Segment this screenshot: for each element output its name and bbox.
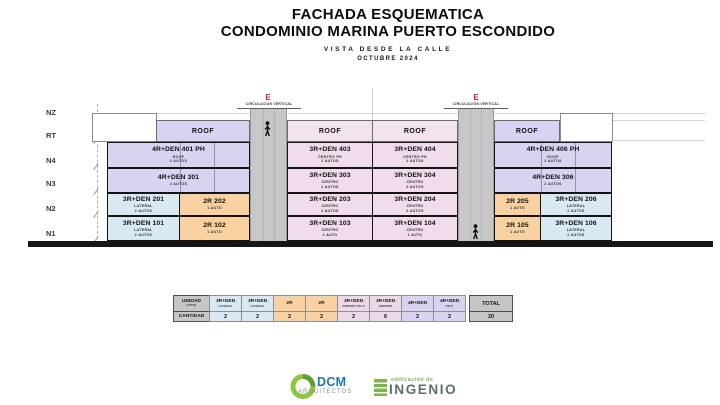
table-header-col: 3R+DEN LATERAL	[209, 295, 242, 312]
level-label-n3: N3	[46, 179, 56, 188]
roof-left: ROOF	[156, 120, 250, 142]
dcm-logo-text: DCM	[317, 375, 346, 389]
parapet-left	[92, 113, 157, 142]
unit-divider	[541, 143, 542, 167]
table-total-value: 20	[469, 311, 513, 322]
table-count-cell: 2	[273, 311, 306, 322]
elevator-letter-right: E	[466, 93, 486, 102]
person-icon	[471, 224, 480, 240]
table-count-cell: 2	[209, 311, 242, 322]
unit-303: 3R+DEN 303 CENTRO 2 AUTOS	[287, 168, 373, 193]
dcm-arquitectos-logo: DCM ARQUITECTOS	[289, 373, 375, 401]
table-header-unidad: UNIDAD (TIPO)	[173, 295, 210, 312]
tower-seam	[470, 109, 471, 241]
unit-104: 3R+DEN 104 CENTRO 1 AUTO	[372, 216, 458, 241]
parapet-top-line	[92, 113, 706, 114]
unit-403: 3R+DEN 403 CENTRO PH 2 AUTOS	[287, 142, 373, 168]
unit-404: 3R+DEN 404 CENTRO PH 2 AUTOS	[372, 142, 458, 168]
elevator-letter-left: E	[258, 93, 278, 102]
circulation-tower-right	[458, 109, 494, 241]
unit-105: 2R 105 1 AUTO	[494, 216, 541, 241]
unit-406: 4R+DEN 406 PH ROOF 2 AUTOS	[494, 142, 612, 168]
table-row-label: CANTIDAD	[173, 311, 210, 322]
table-count-cell: 2	[433, 311, 466, 322]
unit-101: 3R+DEN 101 LATERAL 2 AUTOS	[107, 216, 180, 241]
unit-102: 2R 102 1 AUTO	[179, 216, 250, 241]
unit-divider	[180, 143, 181, 167]
circulation-underline-right	[444, 108, 508, 109]
unit-301: 4R+DEN 301 2 AUTOS	[107, 168, 250, 193]
dcm-logo-subtext: ARQUITECTOS	[298, 389, 352, 395]
parapet-right	[560, 113, 613, 142]
page-title-line1: FACHADA ESQUEMATICA	[58, 6, 718, 23]
unit-106: 3R+DEN 106 LATERAL 2 AUTOS	[540, 216, 612, 241]
level-label-nz: NZ	[46, 108, 56, 117]
table-count-cell: 2	[305, 311, 338, 322]
unit-205: 2R 205 1 AUTO	[494, 193, 541, 216]
ground-line	[28, 241, 713, 247]
unit-203: 3R+DEN 203 CENTRO 2 AUTOS	[287, 193, 373, 216]
roof-center-right: ROOF	[372, 120, 458, 142]
circulation-underline-left	[237, 108, 301, 109]
tower-seam	[274, 109, 275, 241]
circulation-label-right: CIRCULACION VERTICAL	[444, 102, 508, 106]
unit-103: 3R+DEN 103 CENTRO 1 AUTO	[287, 216, 373, 241]
table-header-total: TOTAL	[469, 295, 513, 312]
table-count-cell: 2	[241, 311, 274, 322]
tower-seam	[481, 109, 482, 241]
ingenio-logo-text: INGENIO	[389, 382, 457, 397]
table-header-col: 2R	[305, 295, 338, 312]
page-date: OCTUBRE 2024	[58, 56, 718, 62]
center-axis-line	[372, 88, 373, 120]
table-count-cell: 2	[401, 311, 434, 322]
level-label-n1: N1	[46, 229, 56, 238]
unit-202: 2R 202 1 AUTO	[179, 193, 250, 216]
unit-summary-table: UNIDAD (TIPO) 3R+DEN LATERAL 3R+DEN LATE…	[173, 295, 513, 322]
level-label-n4: N4	[46, 156, 56, 165]
unit-divider	[214, 143, 215, 167]
roof-right: ROOF	[494, 120, 560, 142]
drawing-sheet: FACHADA ESQUEMATICA CONDOMINIO MARINA PU…	[0, 0, 720, 405]
title-block: FACHADA ESQUEMATICA CONDOMINIO MARINA PU…	[58, 6, 718, 62]
table-value-row: CANTIDAD 2 2 2 2 2 6 2 2 20	[173, 311, 513, 322]
table-header-col: 2R	[273, 295, 306, 312]
unit-divider	[214, 169, 215, 192]
level-label-n2: N2	[46, 204, 56, 213]
unit-divider	[541, 169, 542, 192]
table-header-row: UNIDAD (TIPO) 3R+DEN LATERAL 3R+DEN LATE…	[173, 295, 513, 312]
circulation-label-left: CIRCULACION VERTICAL	[237, 102, 301, 106]
table-header-col: 4R+DEN PH'S	[433, 295, 466, 312]
context-line-right	[613, 120, 705, 121]
unit-304: 3R+DEN 304 CENTRO 2 AUTOS	[372, 168, 458, 193]
table-header-col: 4R+DEN	[401, 295, 434, 312]
unit-divider	[575, 169, 576, 192]
page-subtitle: VISTA DESDE LA CALLE	[58, 46, 718, 53]
person-icon	[263, 121, 272, 137]
table-count-cell: 2	[337, 311, 370, 322]
unit-divider	[575, 143, 576, 167]
page-title-line2: CONDOMINIO MARINA PUERTO ESCONDIDO	[58, 23, 718, 40]
table-count-cell: 6	[369, 311, 402, 322]
edificacion-de-ingenio-logo: edificación de INGENIO	[374, 377, 466, 401]
unit-401: 4R+DEN 401 PH ROOF 2 AUTOS	[107, 142, 250, 168]
unit-306: 4R+DEN 306 2 AUTOS	[494, 168, 612, 193]
dcm-swirl-icon	[289, 373, 317, 400]
unit-201: 3R+DEN 201 LATERAL 2 AUTOS	[107, 193, 180, 216]
roof-center-left: ROOF	[287, 120, 373, 142]
table-header-col: 3R+DEN CENTRO	[369, 295, 402, 312]
ingenio-e-icon	[374, 379, 387, 396]
table-header-col: 3R+DEN LATERAL	[241, 295, 274, 312]
unit-divider	[180, 169, 181, 192]
level-label-rt: RT	[46, 131, 56, 140]
table-header-col: 3R+DEN CENTRO PH'S	[337, 295, 370, 312]
unit-204: 3R+DEN 204 CENTRO 2 AUTOS	[372, 193, 458, 216]
context-line-right	[613, 140, 705, 141]
unit-206: 3R+DEN 206 LATERAL 2 AUTOS	[540, 193, 612, 216]
